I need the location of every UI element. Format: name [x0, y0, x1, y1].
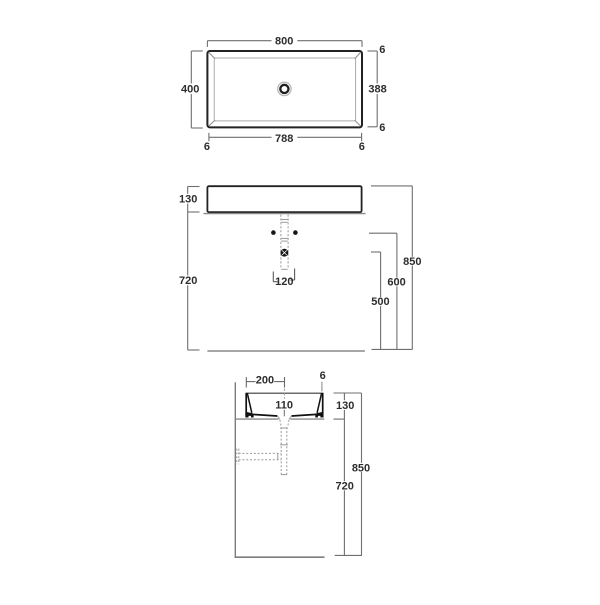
svg-text:120: 120 [275, 276, 293, 288]
svg-text:600: 600 [387, 277, 405, 289]
svg-text:200: 200 [256, 375, 274, 387]
svg-text:500: 500 [371, 296, 389, 308]
svg-text:850: 850 [403, 256, 421, 268]
svg-text:388: 388 [368, 84, 386, 96]
svg-text:850: 850 [352, 462, 370, 474]
svg-text:788: 788 [275, 133, 293, 145]
svg-text:6: 6 [379, 44, 385, 56]
svg-text:720: 720 [179, 275, 197, 287]
svg-text:130: 130 [336, 400, 354, 412]
svg-text:6: 6 [204, 141, 210, 153]
svg-text:6: 6 [359, 141, 365, 153]
svg-text:6: 6 [320, 370, 326, 382]
svg-text:800: 800 [275, 35, 293, 47]
svg-text:110: 110 [275, 399, 293, 411]
svg-text:6: 6 [379, 122, 385, 134]
svg-text:400: 400 [181, 84, 199, 96]
svg-text:130: 130 [179, 193, 197, 205]
svg-text:720: 720 [336, 480, 354, 492]
